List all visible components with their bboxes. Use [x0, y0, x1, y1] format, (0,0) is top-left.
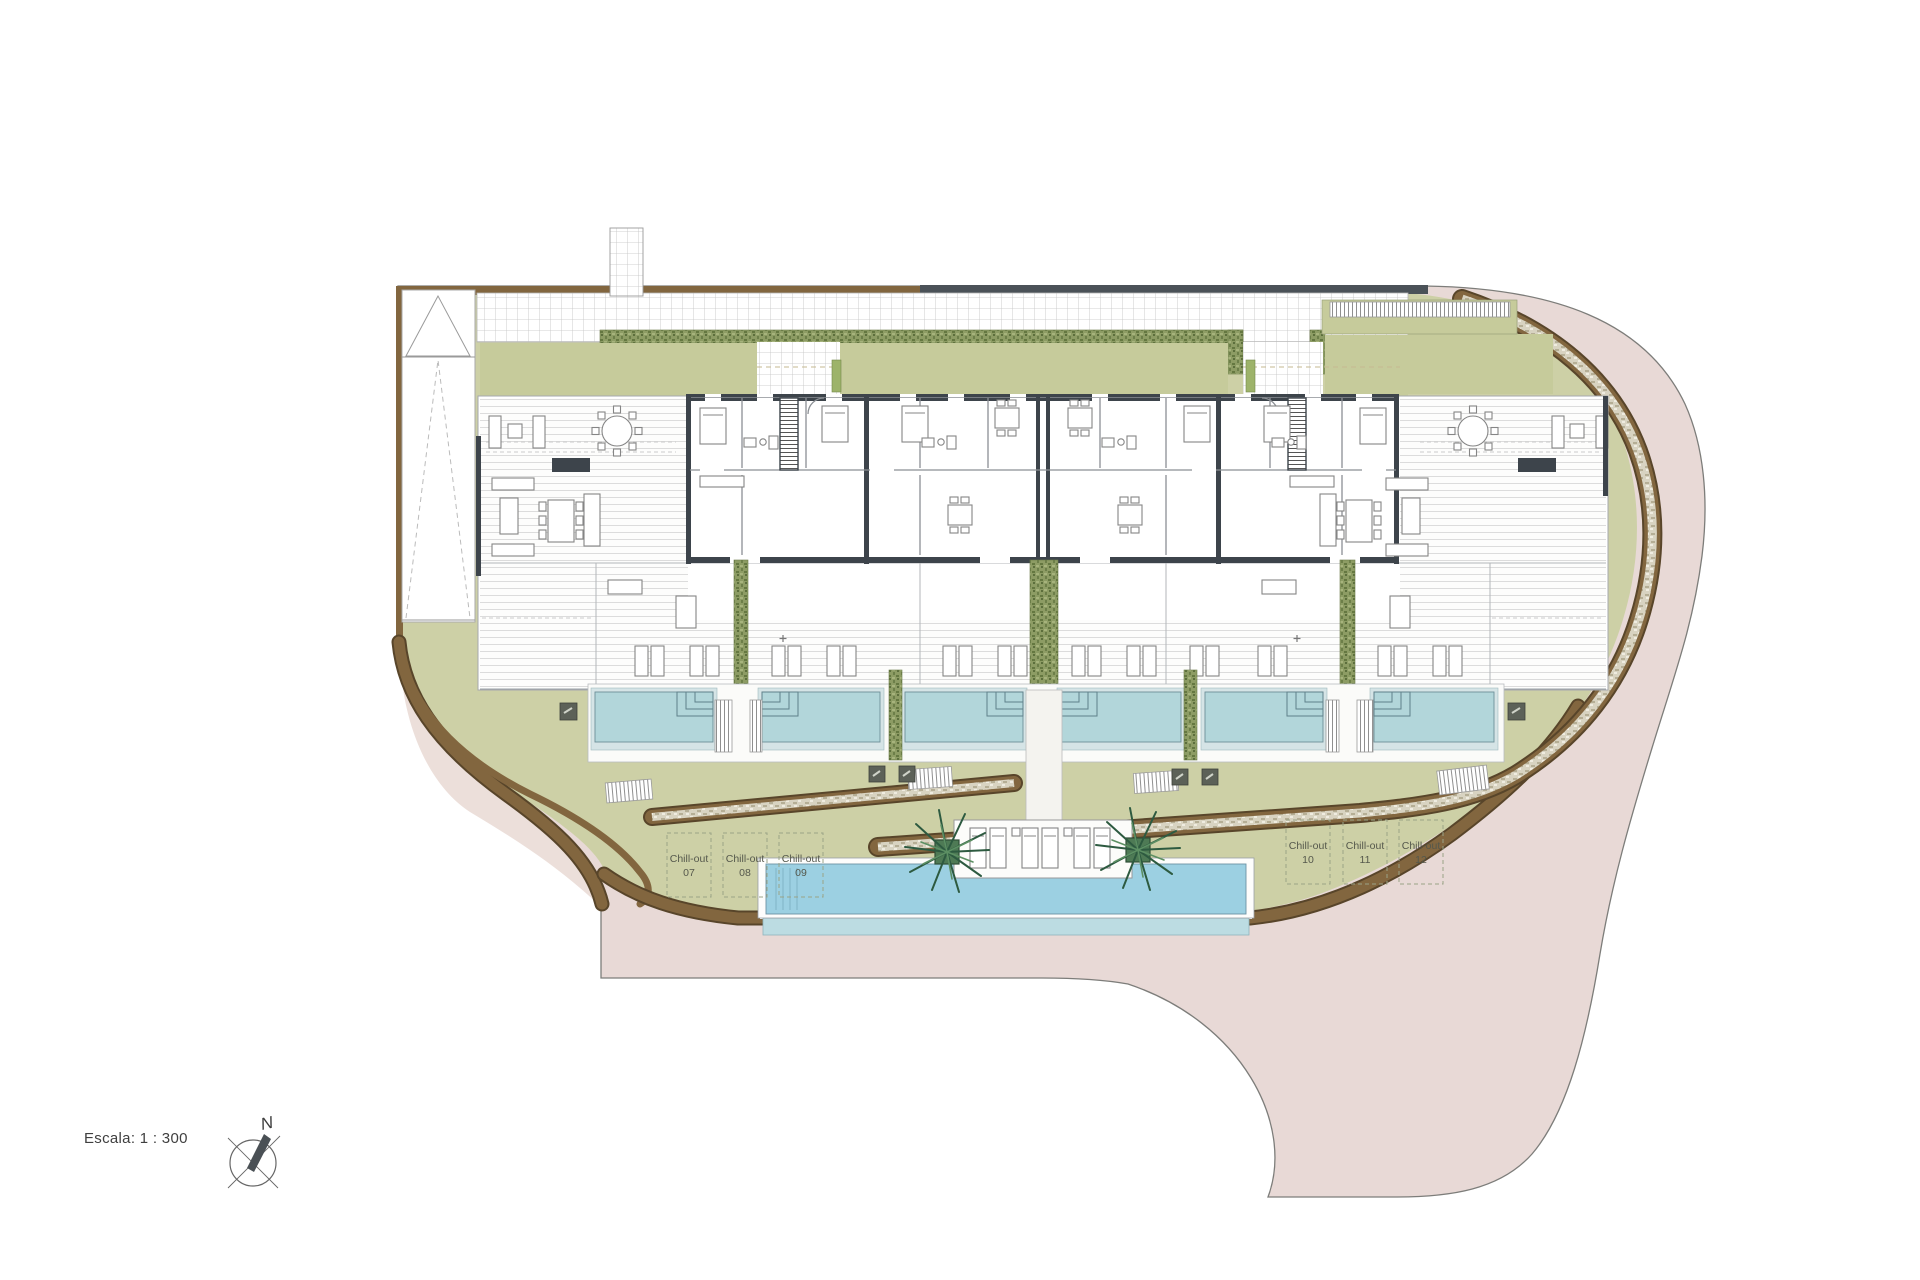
private-pool: [1370, 688, 1498, 750]
side-table-icon: [1570, 424, 1584, 438]
scale-label: Escala: 1 : 300: [84, 1130, 188, 1147]
hedge-divider: [1184, 670, 1197, 760]
dining-table-icon: [1337, 500, 1381, 542]
sofa-icon: [489, 416, 501, 448]
chill-out-number: 08: [739, 867, 751, 879]
round-table-icon: [1448, 406, 1498, 456]
sofa-icon: [1552, 416, 1564, 448]
sun-lounger-icon: [1094, 828, 1110, 868]
planter-strip-east: [1325, 335, 1408, 396]
staircase: [1288, 398, 1306, 470]
chill-out-number: 07: [683, 867, 695, 879]
spotlight-icon: [1508, 703, 1525, 720]
side-table-icon: [508, 424, 522, 438]
coffee-table-icon: [500, 498, 518, 534]
pool-steps-comb: [1326, 700, 1339, 752]
chill-out-label: Chill-out: [670, 853, 709, 865]
svg-text:Chill-out: Chill-out: [1346, 840, 1385, 852]
svg-text:Chill-out: Chill-out: [1402, 840, 1441, 852]
sofa-icon: [533, 416, 545, 448]
pool-steps-comb: [750, 700, 762, 752]
terrace-southwest: [480, 560, 596, 688]
private-pool: [901, 688, 1027, 750]
sun-lounger-icon: [1074, 828, 1090, 868]
chill-out-label: Chill-out: [782, 853, 821, 865]
terrace-southeast: [1490, 560, 1606, 688]
chill-out-number: 11: [1360, 854, 1371, 866]
hedge-divider: [889, 670, 902, 760]
private-pool: [1201, 688, 1327, 750]
coffee-table-icon: [1402, 498, 1420, 534]
chill-out-label: Chill-out: [1289, 840, 1328, 852]
axis-walkway: [1026, 690, 1062, 826]
svg-text:11: 11: [1360, 854, 1371, 866]
svg-text:Chill-out: Chill-out: [726, 853, 765, 865]
svg-text:07: 07: [683, 867, 695, 879]
round-table-icon: [592, 406, 642, 456]
spotlight-icon: [899, 766, 915, 782]
kitchen-counter-icon: [700, 476, 744, 487]
hedge-row-roof: [600, 330, 1243, 343]
bed-icon: [822, 406, 848, 442]
pool-overflow-channel: [763, 918, 1249, 935]
side-table-icon: [1012, 828, 1020, 836]
spotlight-icon: [560, 703, 577, 720]
bed-icon: [902, 406, 928, 442]
side-table-icon: [1064, 828, 1072, 836]
chill-out-label: Chill-out: [1346, 840, 1385, 852]
pergola-grid-north: [610, 228, 643, 296]
kitchen-counter-icon: [1290, 476, 1334, 487]
svg-text:10: 10: [1302, 854, 1314, 866]
sofa-icon: [1386, 544, 1428, 556]
spotlight-icon: [869, 766, 885, 782]
bed-icon: [1264, 406, 1290, 442]
pergola-slat-band: [1322, 300, 1517, 334]
hedge-entry-left: [1228, 330, 1243, 374]
kitchen-island-icon: [584, 494, 600, 546]
svg-text:Chill-out: Chill-out: [670, 853, 709, 865]
site-plan-page: Chill-out 07 Chill-out 08 Chill-out 09 C…: [0, 0, 1920, 1280]
svg-text:Chill-out: Chill-out: [1289, 840, 1328, 852]
svg-text:09: 09: [795, 867, 807, 879]
chill-out-number: 10: [1302, 854, 1314, 866]
kitchen-island-icon: [1320, 494, 1336, 546]
sofa-icon: [492, 544, 534, 556]
sun-lounger-icon: [1042, 828, 1058, 868]
sofa-icon: [492, 478, 534, 490]
site-plan-drawing: Chill-out 07 Chill-out 08 Chill-out 09 C…: [0, 0, 1920, 1280]
hedge-axis: [1030, 560, 1058, 693]
chill-out-number: 12: [1415, 854, 1427, 866]
svg-text:08: 08: [739, 867, 751, 879]
pool-steps-comb: [1357, 700, 1373, 752]
door-mat-west: [832, 360, 841, 392]
svg-text:12: 12: [1415, 854, 1427, 866]
chill-out-number: 09: [795, 867, 807, 879]
dining-table-icon: [539, 500, 583, 542]
chill-out-label: Chill-out: [1402, 840, 1441, 852]
bed-icon: [700, 408, 726, 444]
sun-lounger-icon: [990, 828, 1006, 868]
staircase: [780, 398, 798, 470]
bed-icon: [1360, 408, 1386, 444]
building: [402, 228, 1608, 758]
planter-strip-center: [840, 343, 1228, 396]
entry-court-west: [757, 342, 840, 396]
spotlight-icon: [1172, 769, 1188, 785]
svg-text:Chill-out: Chill-out: [782, 853, 821, 865]
sun-lounger-icon: [1022, 828, 1038, 868]
planter-east-side: [1408, 334, 1553, 394]
spotlight-icon: [1202, 769, 1218, 785]
private-pool: [758, 688, 884, 750]
sofa-icon: [1386, 478, 1428, 490]
pool-steps-comb: [715, 700, 732, 752]
private-pool: [1057, 688, 1185, 750]
private-pool: [591, 688, 717, 750]
chill-out-label: Chill-out: [726, 853, 765, 865]
door-mat-east: [1246, 360, 1255, 392]
garden-steps-west: [605, 779, 653, 803]
bed-icon: [1184, 406, 1210, 442]
planter-strip-west: [480, 343, 757, 396]
access-ramp: [402, 290, 475, 622]
